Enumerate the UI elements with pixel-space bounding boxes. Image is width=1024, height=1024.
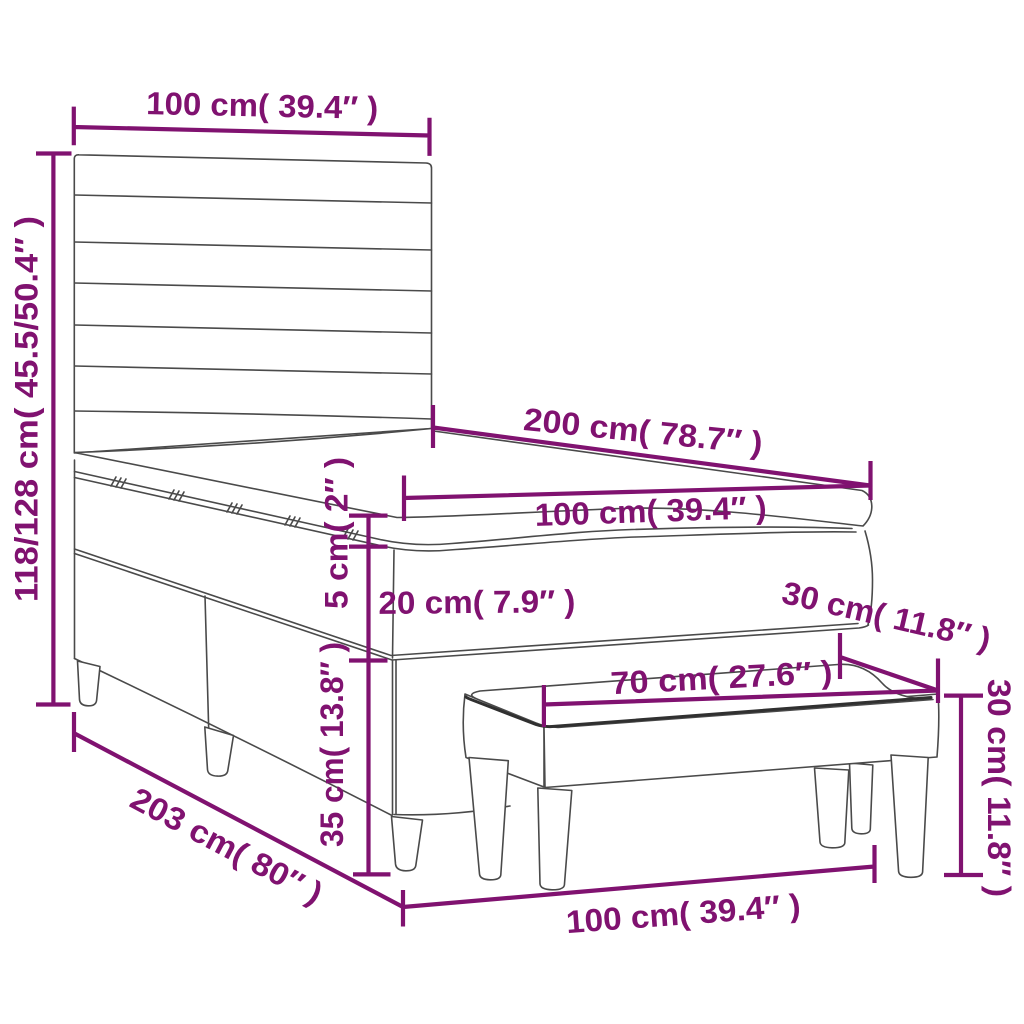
svg-text:35 cm( 13.8″ ): 35 cm( 13.8″ ) (314, 642, 350, 847)
svg-text:5 cm( 2″ ): 5 cm( 2″ ) (319, 457, 355, 609)
svg-text:118/128 cm( 45.5/50.4″ ): 118/128 cm( 45.5/50.4″ ) (9, 216, 45, 602)
svg-text:30 cm( 11.8″ ): 30 cm( 11.8″ ) (981, 679, 1017, 897)
svg-text:100 cm( 39.4″ ): 100 cm( 39.4″ ) (146, 85, 379, 126)
svg-text:20 cm( 7.9″ ): 20 cm( 7.9″ ) (378, 583, 575, 621)
